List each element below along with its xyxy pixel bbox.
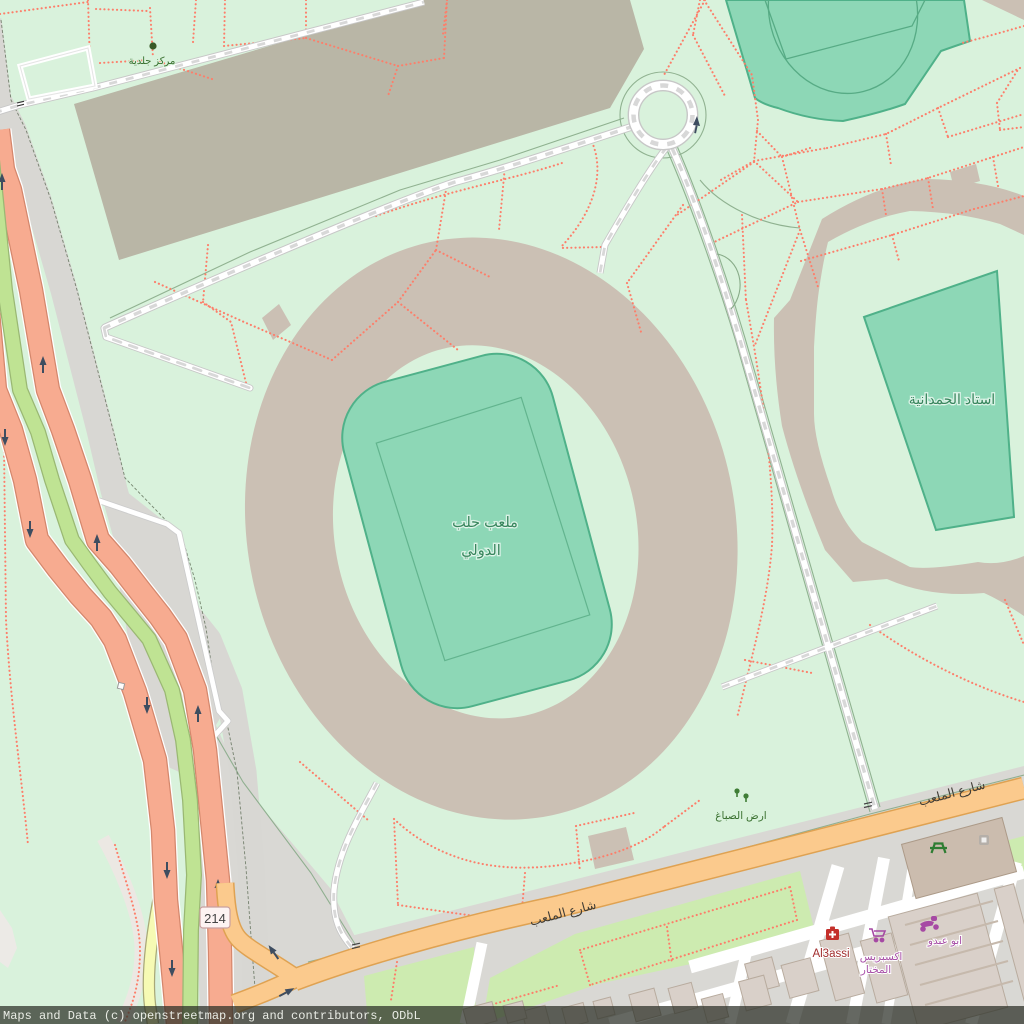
- svg-text:مركز جلدية: مركز جلدية: [129, 56, 176, 67]
- svg-text:الدولي: الدولي: [461, 543, 501, 559]
- svg-text:ملعب حلب: ملعب حلب: [452, 515, 518, 531]
- svg-text:Maps and Data (c) openstreetma: Maps and Data (c) openstreetmap.org and …: [3, 1009, 421, 1023]
- svg-text:214: 214: [204, 911, 226, 926]
- svg-text:المختار: المختار: [860, 964, 891, 976]
- svg-text:استاد الحمدانية: استاد الحمدانية: [909, 391, 995, 407]
- svg-text:Al3assi: Al3assi: [812, 948, 849, 960]
- svg-text:ابو عبدو: ابو عبدو: [927, 935, 962, 947]
- svg-text:اكسبريس: اكسبريس: [860, 951, 903, 963]
- svg-text:ارض الصباغ: ارض الصباغ: [715, 810, 767, 822]
